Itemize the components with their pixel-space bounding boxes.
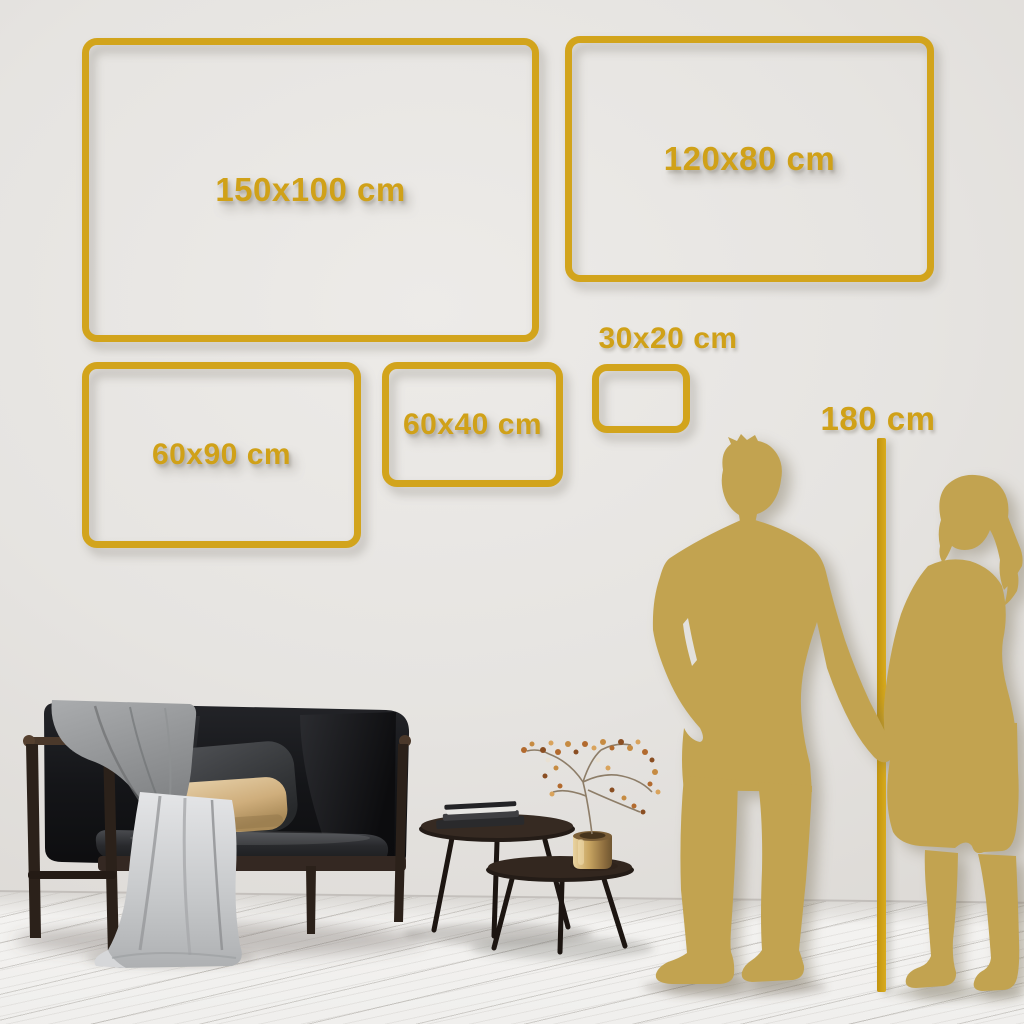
man-right-leg	[742, 782, 812, 982]
size-guide-scene: 150x100 cm 120x80 cm 60x90 cm 60x40 cm 3…	[0, 0, 1024, 1024]
woman-right-leg	[974, 854, 1020, 991]
couple-layer	[0, 0, 1024, 1024]
woman-left-leg	[906, 850, 958, 988]
man-torso	[653, 520, 892, 792]
man-silhouette	[653, 434, 892, 984]
man-head	[722, 434, 782, 528]
woman-skirt	[887, 720, 1018, 853]
man-left-leg	[656, 776, 738, 984]
woman-silhouette	[884, 475, 1023, 991]
